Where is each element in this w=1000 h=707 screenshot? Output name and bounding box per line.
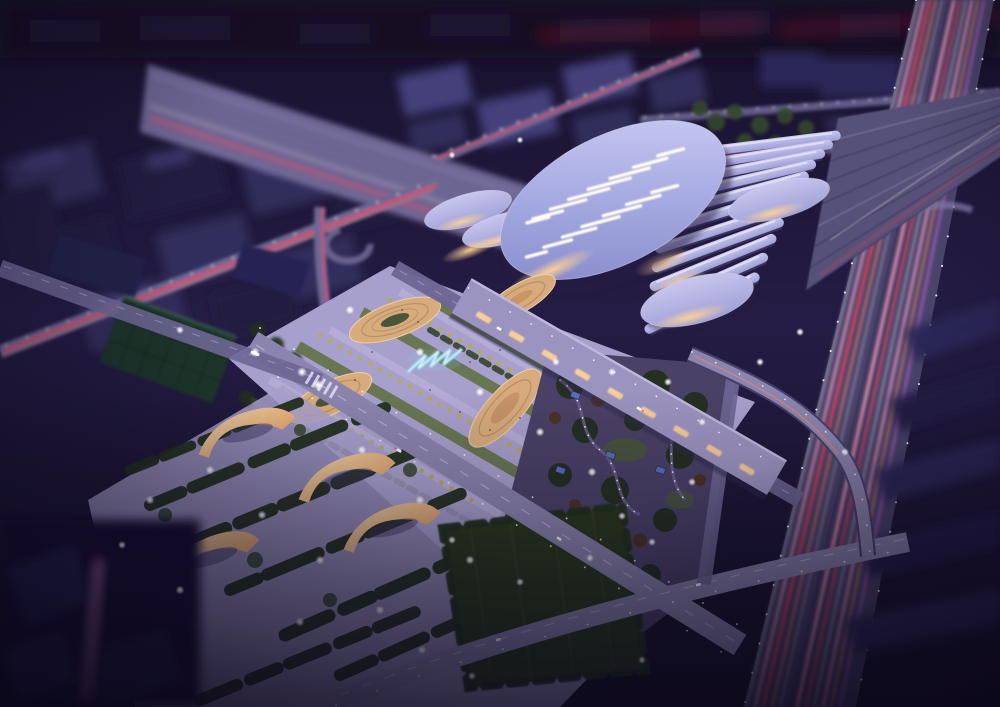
rendering-canvas — [0, 0, 1000, 707]
vignette-bottom — [0, 0, 1000, 707]
night-aerial-station-rendering — [0, 0, 1000, 707]
